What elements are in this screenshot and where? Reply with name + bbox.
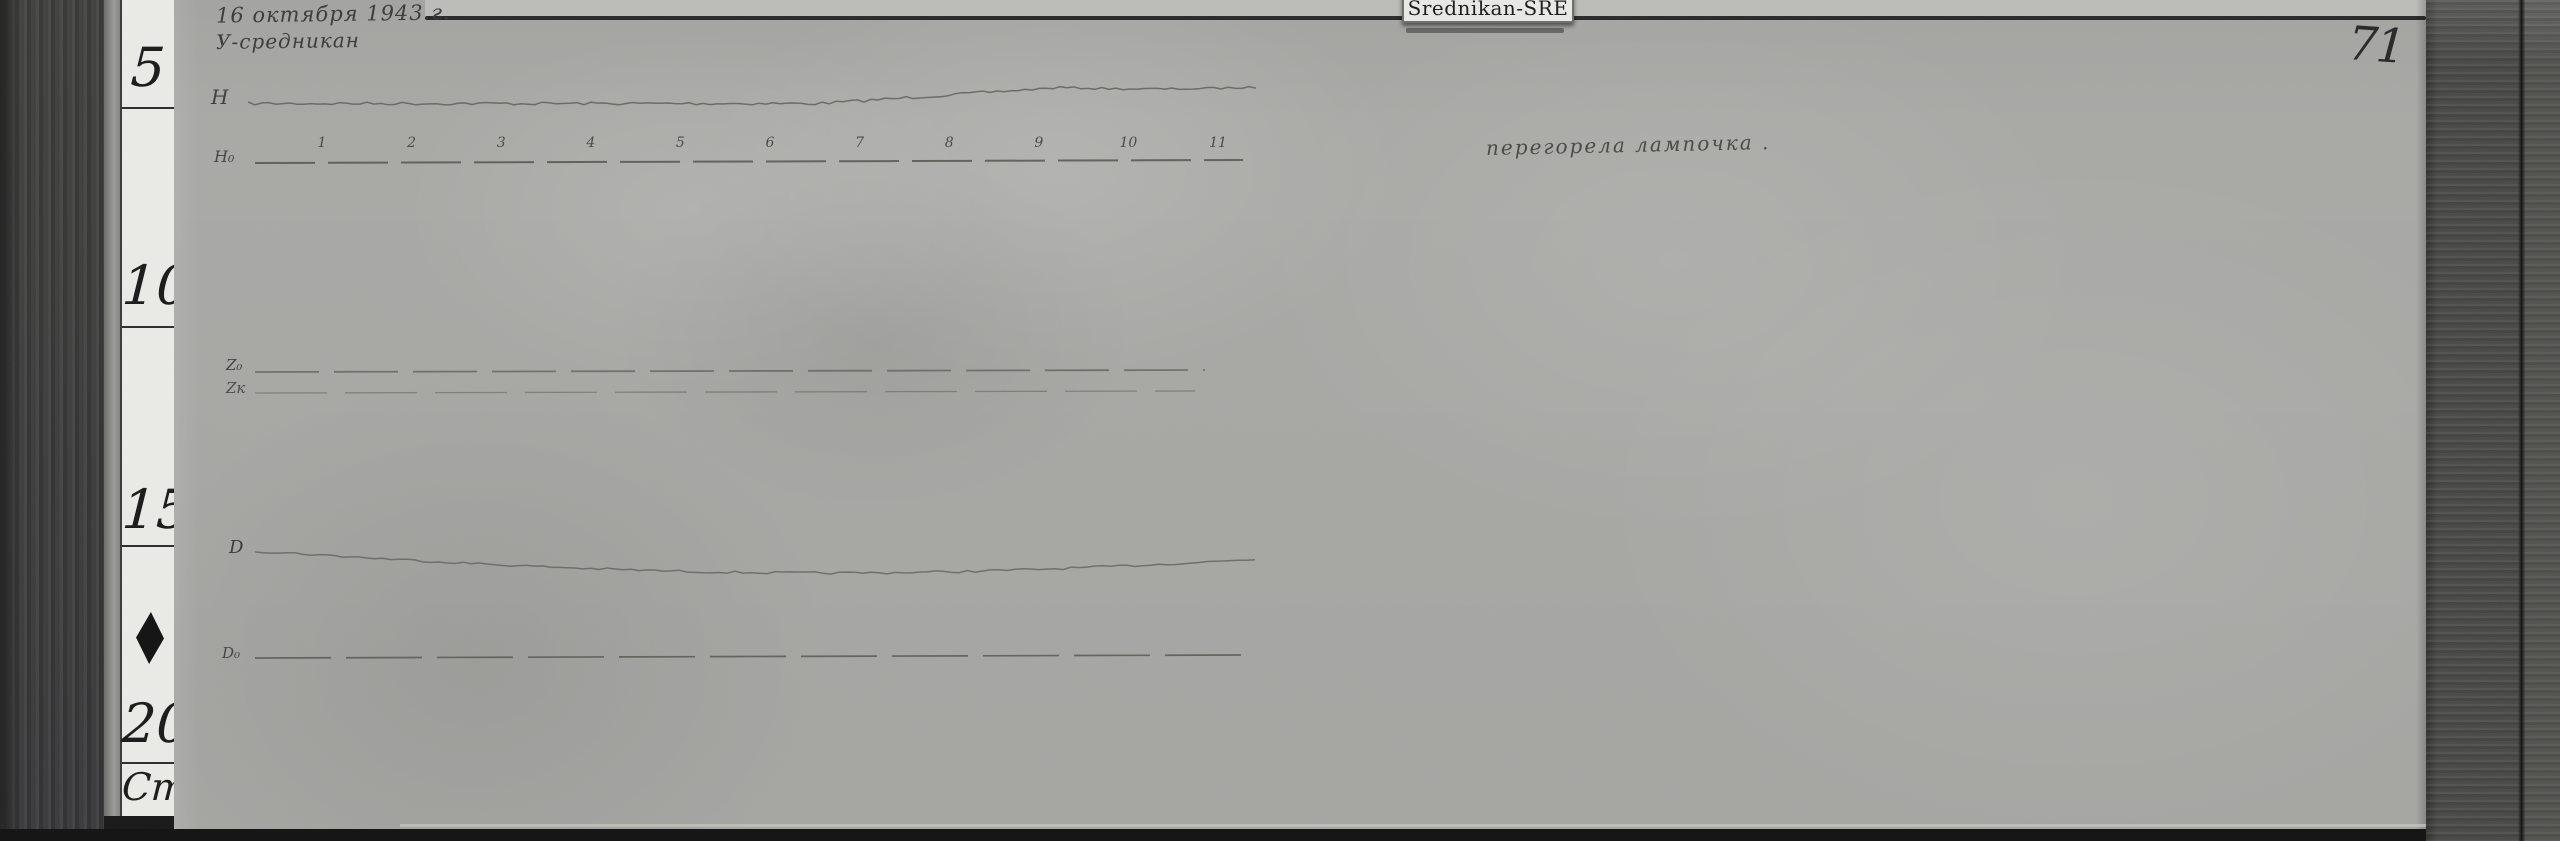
hour-mark: 9	[1034, 135, 1043, 151]
date-annotation: 16 октября 1943 г.	[216, 0, 451, 27]
hour-mark: 2	[407, 135, 416, 151]
h0-trace-label: Н₀	[214, 147, 234, 166]
magnetogram-sheet	[174, 0, 2426, 829]
hour-mark: 5	[676, 135, 685, 151]
diamond-icon	[135, 612, 165, 665]
station-tag: Srednikan-SRE	[1402, 0, 1574, 23]
wood-light-column	[2525, 0, 2560, 841]
page-number: 71	[2346, 16, 2406, 75]
ruler-mark: 20	[120, 694, 175, 754]
z0-trace-label: Z₀	[226, 356, 242, 374]
hour-mark: 7	[855, 135, 864, 151]
ruler-mark: 15	[120, 480, 175, 540]
bottom-dark-strip	[0, 829, 2560, 841]
zk-trace-label: Zк	[226, 379, 245, 397]
sheet-bottom-edge	[400, 824, 2426, 827]
ruler-segment-line	[122, 326, 174, 328]
ruler-unit-label: Cm	[121, 764, 175, 810]
wood-frame-right	[2426, 0, 2560, 841]
ruler-mark: 5	[120, 38, 175, 98]
station-annotation: У-средникан	[216, 28, 360, 54]
wood-frame-left	[0, 0, 106, 841]
hour-mark: 11	[1209, 135, 1227, 151]
magnetogram-photo: 5101520 Cm 16 октября 1943 г. У-средника…	[0, 0, 2560, 841]
tag-shadow	[1406, 28, 1564, 33]
ruler-segment-line	[122, 107, 174, 109]
hour-mark: 4	[586, 135, 595, 151]
hour-mark: 3	[497, 135, 506, 151]
ruler-mark: 10	[120, 256, 175, 316]
hour-mark: 1	[318, 135, 327, 151]
hour-mark: 6	[766, 135, 775, 151]
d0-trace-label: D₀	[222, 644, 240, 662]
ruler-segment-line	[122, 545, 174, 547]
h-trace-label: H	[211, 85, 228, 109]
hour-mark: 8	[945, 135, 954, 151]
d-trace-label: D	[229, 537, 243, 558]
sheet-right-edge-shadow	[2416, 0, 2426, 829]
hour-mark: 10	[1119, 135, 1137, 151]
wood-groove	[2518, 0, 2525, 841]
cm-ruler: 5101520 Cm	[120, 0, 176, 818]
